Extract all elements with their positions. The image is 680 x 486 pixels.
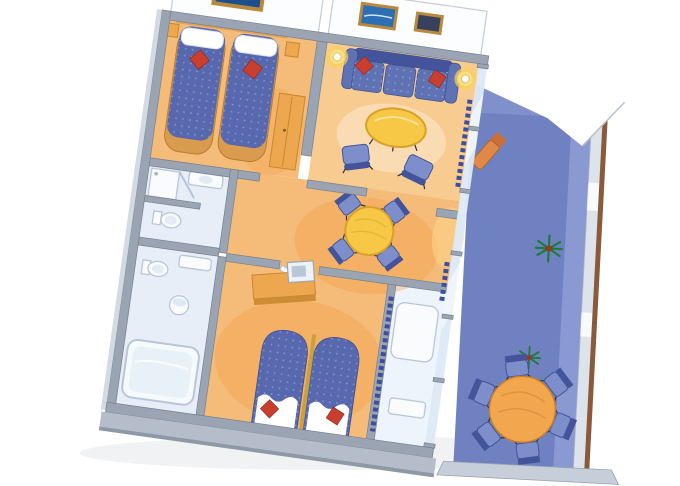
floor-plan [98,0,680,486]
television [287,261,314,283]
suite-floor-plan-illustration [0,0,680,486]
bathtub [121,339,200,406]
en-suite-tub [390,302,439,363]
illustration-canvas [0,0,680,486]
nightstand [285,42,300,58]
framed-dark-picture [413,11,444,35]
